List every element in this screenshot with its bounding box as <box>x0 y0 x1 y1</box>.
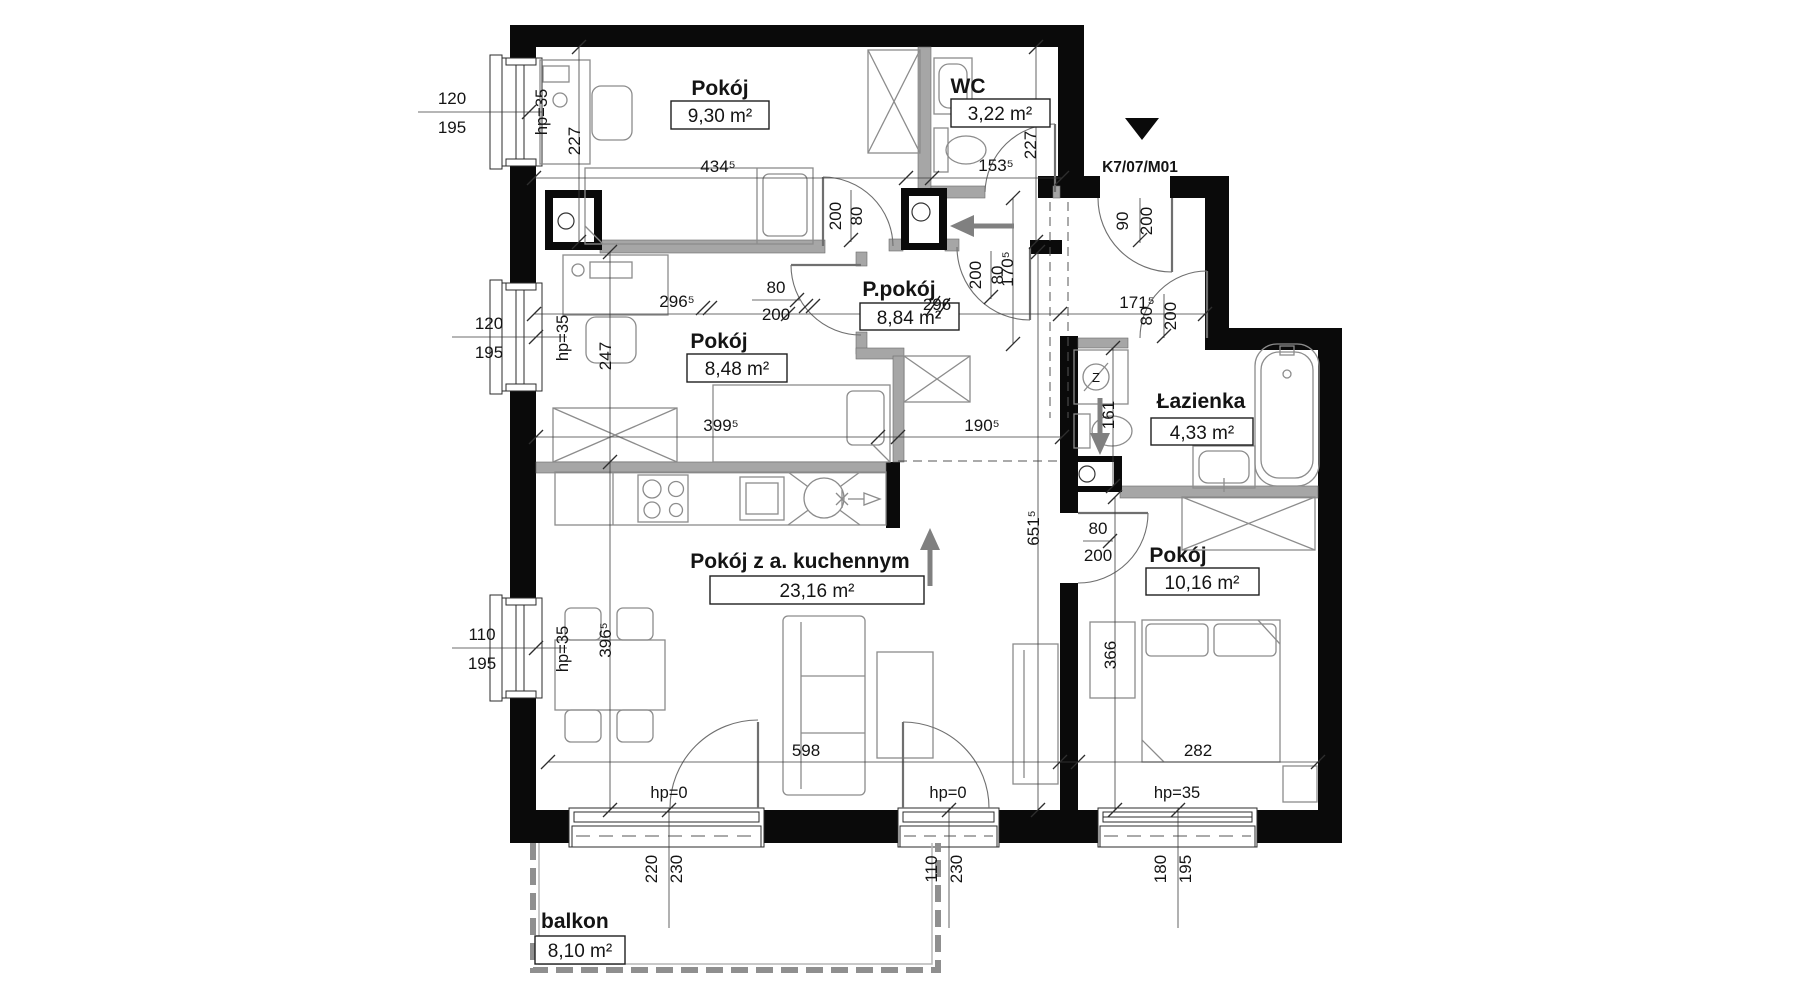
door-room1-h: 200 <box>826 202 845 230</box>
win3-hp: hp=35 <box>554 626 572 672</box>
furniture-hall <box>904 356 970 402</box>
living-area: 23,16 m² <box>780 581 855 602</box>
door-entrance-w: 90 <box>1113 212 1132 231</box>
dim-living-height: 651⁵ <box>1024 510 1043 545</box>
win3-width: 110 <box>468 625 495 644</box>
bottom-wall-openings <box>569 808 1257 847</box>
dim-wc-height: 227 <box>1021 131 1040 159</box>
bathroom-area: 4,33 m² <box>1170 423 1234 444</box>
win3-height: 195 <box>468 654 496 673</box>
left-wall-windows <box>490 55 542 701</box>
dim-room1-width: 434⁵ <box>700 157 735 176</box>
entrance-arrow-icon <box>950 215 1014 237</box>
bedwin-height: 195 <box>1176 855 1195 883</box>
win1-height: 195 <box>438 118 466 137</box>
dim-dining-height: 396⁵ <box>596 622 615 657</box>
door-hall-w: 80 <box>988 266 1007 285</box>
bedroom-name: Pokój <box>1149 544 1206 567</box>
win1-hp: hp=35 <box>533 89 551 135</box>
installation-shafts <box>545 188 1122 492</box>
faucet-icon <box>836 490 880 508</box>
balcdoor1-height: 230 <box>667 855 686 883</box>
win2-hp: hp=35 <box>554 315 572 361</box>
balcony-area: 8,10 m² <box>548 941 612 962</box>
room2-name: Pokój <box>690 330 747 353</box>
entrance-marker-icon <box>1125 118 1159 140</box>
bedwin-width: 180 <box>1151 855 1170 883</box>
win1-width: 120 <box>438 89 466 108</box>
living-name: Pokój z a. kuchennym <box>690 550 909 573</box>
door-hall-h: 200 <box>966 261 985 289</box>
dim-bath-niche: 161 <box>1099 401 1118 429</box>
dim-living-width: 598 <box>792 741 820 760</box>
boiler-symbol: Z <box>1092 370 1100 385</box>
bedroom-area: 10,16 m² <box>1165 573 1240 594</box>
dim-room2-desk: 247 <box>596 342 615 370</box>
floor-plan-drawing: Z <box>0 0 1800 1008</box>
dim-bedroom-height: 366 <box>1101 641 1120 669</box>
bathroom-name: Łazienka <box>1157 390 1246 413</box>
win2-height: 195 <box>475 343 503 362</box>
wc-name: WC <box>951 75 986 98</box>
bedwin-hp: hp=35 <box>1154 784 1200 802</box>
balcdoor1-hp: hp=0 <box>650 784 687 802</box>
balcdoor2-hp: hp=0 <box>929 784 966 802</box>
kitchen-annex <box>555 472 886 525</box>
dim-room1-height: 227 <box>565 127 584 155</box>
furniture-living <box>555 608 1058 795</box>
balcony-name: balkon <box>541 910 609 933</box>
door-bedroom-h: 200 <box>1084 546 1112 565</box>
dim-wc-width: 153⁵ <box>978 156 1013 175</box>
balcdoor2-height: 230 <box>947 855 966 883</box>
dim-room2-bottom: 399⁵ <box>703 416 738 435</box>
room1-name: Pokój <box>691 77 748 100</box>
door-bathroom-h: 200 <box>1161 302 1180 330</box>
unit-code: K7/07/M01 <box>1102 159 1178 176</box>
room1-area: 9,30 m² <box>688 106 752 127</box>
dim-room2-width: 296⁵ <box>659 292 694 311</box>
door-room1-w: 80 <box>847 207 866 226</box>
door-bathroom-w: 80 <box>1137 307 1156 326</box>
door-room2-w: 80 <box>767 278 786 297</box>
win2-width: 120 <box>475 314 503 333</box>
dim-bedroom-width: 282 <box>1184 741 1212 760</box>
balcdoor2-width: 110 <box>922 855 941 882</box>
dim-kitchen-opening: 190⁵ <box>964 416 999 435</box>
dim-hall-crossed: 296 <box>923 295 951 314</box>
balcdoor1-width: 220 <box>642 855 661 883</box>
door-room2-h: 200 <box>762 305 790 324</box>
door-entrance-h: 200 <box>1137 207 1156 235</box>
door-bedroom-w: 80 <box>1089 519 1108 538</box>
room2-area: 8,48 m² <box>705 359 769 380</box>
wc-area: 3,22 m² <box>968 104 1032 125</box>
floor-plan-page: Z <box>0 0 1800 1008</box>
